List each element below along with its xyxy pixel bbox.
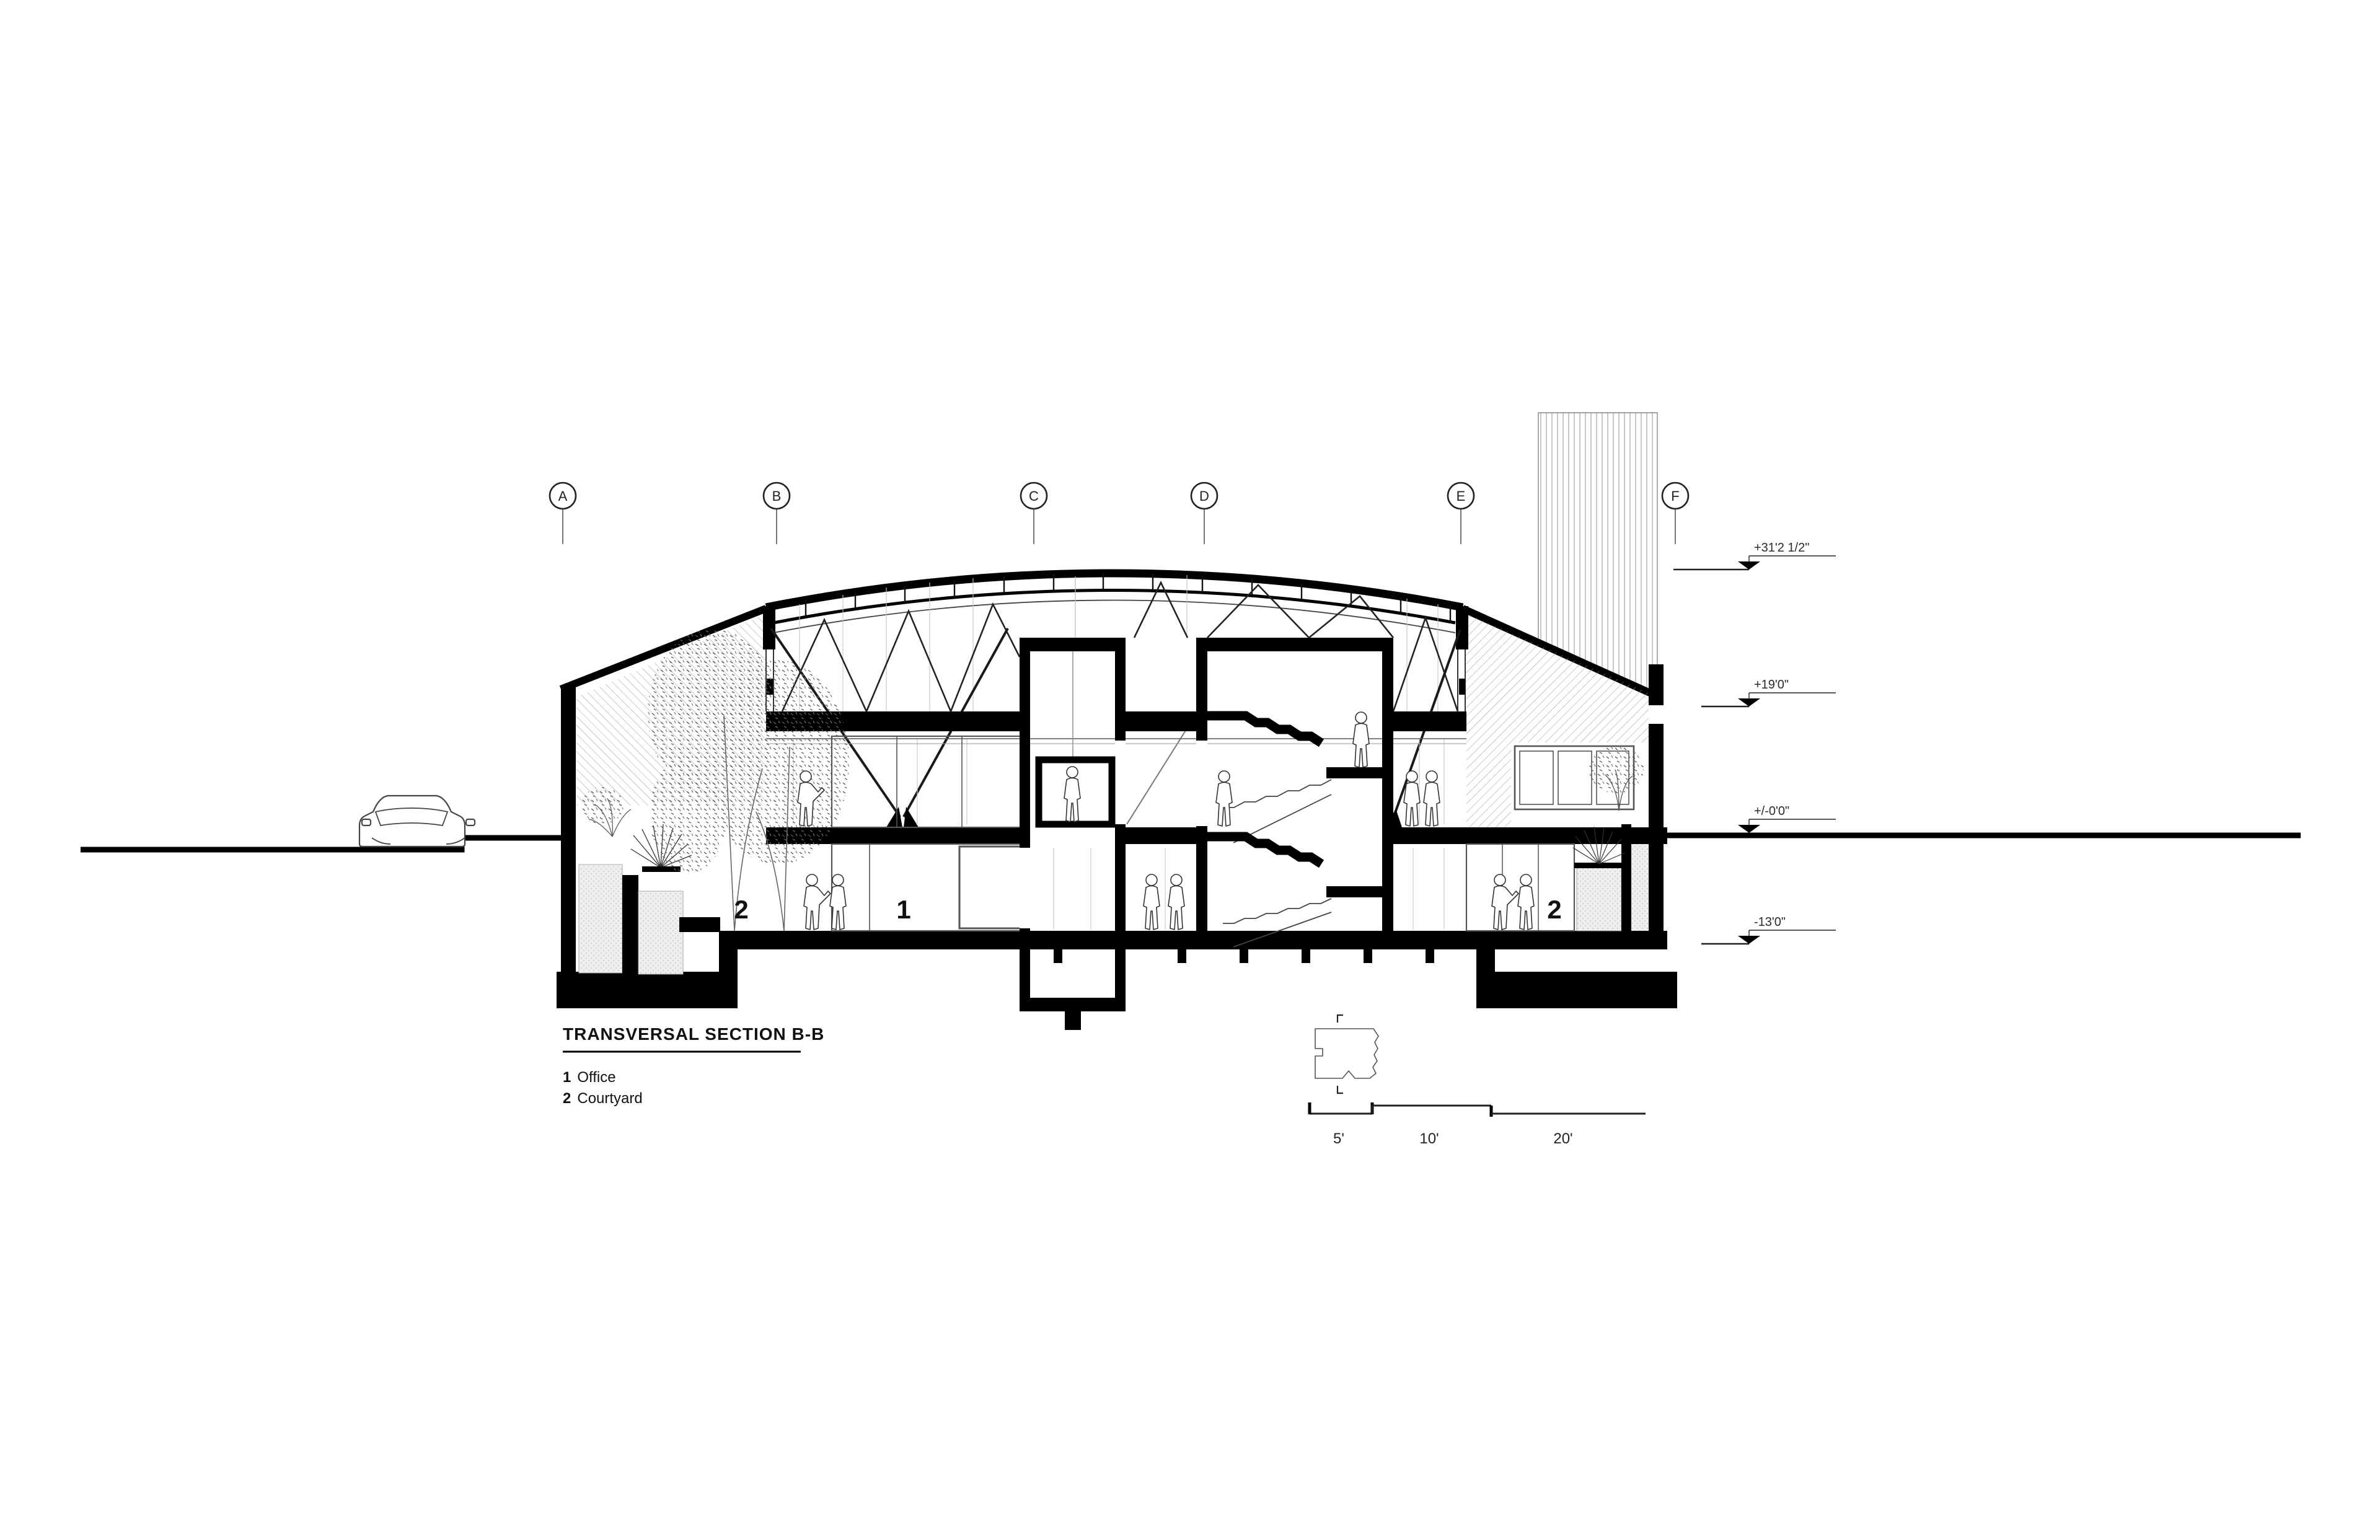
- title-block: TRANSVERSAL SECTION B-B 1Office 2Courtya…: [563, 1024, 824, 1107]
- person-office-2: [1168, 874, 1184, 930]
- person-on-landing: [1353, 712, 1369, 767]
- elevator-core: [1020, 638, 1126, 1030]
- scale-bar: 5' 10' 20': [1310, 1102, 1646, 1147]
- elevation-marker-basement: -13'0": [1701, 915, 1836, 944]
- elevation-marker-ground: +/-0'0": [1738, 804, 1836, 833]
- legend-label: Courtyard: [577, 1090, 642, 1107]
- grid-marker-d: D: [1191, 483, 1217, 544]
- elevation-label: -13'0": [1754, 915, 1786, 929]
- scale-label-20: 20': [1553, 1130, 1572, 1147]
- section-drawing: A B C D E: [0, 0, 2380, 1540]
- grid-label: D: [1199, 488, 1209, 504]
- legend-label: Office: [577, 1069, 615, 1086]
- grid-marker-f: F: [1662, 483, 1688, 544]
- room-label-courtyard-left: 2: [734, 895, 748, 924]
- grid-label: F: [1671, 488, 1679, 504]
- car: [359, 796, 475, 847]
- scale-label-5: 5': [1333, 1130, 1344, 1147]
- elevation-label: +19'0": [1754, 678, 1789, 692]
- person-courtyard-left-1: [804, 874, 831, 930]
- drawing-title: TRANSVERSAL SECTION B-B: [563, 1024, 824, 1044]
- legend-num: 2: [563, 1090, 571, 1107]
- scale-label-10: 10': [1419, 1130, 1439, 1147]
- key-plan: [1315, 1015, 1378, 1093]
- grid-marker-a: A: [550, 483, 576, 544]
- grid-markers: A B C D E: [550, 483, 1474, 544]
- section-cut-mark-top: [1338, 1015, 1343, 1023]
- legend-num: 1: [563, 1069, 571, 1086]
- person-courtyard-right-2: [1518, 874, 1534, 930]
- arch-ties: [806, 573, 1450, 623]
- legend-item-office: 1Office: [563, 1069, 616, 1086]
- grid-label: A: [558, 488, 568, 504]
- tree-group-left: [648, 629, 849, 931]
- room-label-courtyard-right: 2: [1547, 895, 1561, 924]
- person-main-right-2: [1424, 771, 1440, 826]
- elevation-label: +31'2 1/2": [1754, 541, 1809, 555]
- grid-marker-e: E: [1448, 483, 1474, 544]
- grid-label: C: [1029, 488, 1039, 504]
- person-by-stair: [1216, 771, 1232, 826]
- grid-label: B: [772, 488, 782, 504]
- elevation-label: +/-0'0": [1754, 804, 1789, 818]
- legend-item-courtyard: 2Courtyard: [563, 1090, 643, 1107]
- drawing-sheet: { "title_block": { "title": "TRANSVERSAL…: [0, 0, 2380, 1540]
- grid-marker-c: C: [1021, 483, 1047, 544]
- person-courtyard-right-1: [1492, 874, 1518, 930]
- grid-marker-b: B: [764, 483, 790, 544]
- section-cut-mark-bottom: [1338, 1086, 1343, 1093]
- grid-label: E: [1457, 488, 1466, 504]
- room-label-office: 1: [896, 895, 910, 924]
- elevation-markers: +31'2 1/2" +19'0" +/-0'0" -13'0": [1673, 541, 1836, 944]
- person-office-1: [1144, 874, 1160, 930]
- elevation-marker-upper-floor: +19'0": [1701, 678, 1836, 706]
- elevation-marker-roof: +31'2 1/2": [1673, 541, 1836, 570]
